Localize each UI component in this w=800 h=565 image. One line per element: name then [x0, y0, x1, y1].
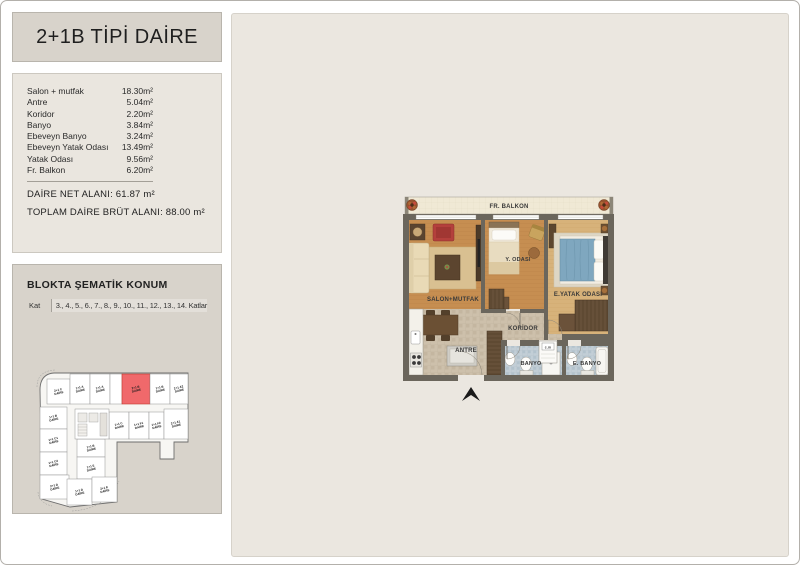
area-row-label: Koridor — [27, 109, 54, 120]
area-row: Fr. Balkon6.20m² — [27, 165, 153, 176]
sink — [505, 353, 515, 366]
room-label-balcony: FR. BALKON — [490, 204, 529, 210]
table-plant-flower — [446, 266, 448, 268]
toilet-tank — [581, 371, 594, 376]
service-core — [75, 409, 109, 439]
area-table-box: Salon + mutfak18.30m²Antre5.04m²Koridor2… — [12, 73, 222, 253]
wardrobe — [575, 300, 608, 331]
block-schematic: 2+1 CDAİRE1+1 ADAİRE1+1 ADAİRE2+1 BDAİRE… — [35, 342, 205, 514]
room-label-cm: c.m — [545, 346, 551, 350]
area-row: Banyo3.84m² — [27, 120, 153, 131]
area-table: Salon + mutfak18.30m²Antre5.04m²Koridor2… — [27, 86, 153, 176]
burner — [412, 355, 416, 359]
hall-closet — [487, 331, 502, 375]
bed-headboard — [489, 222, 519, 228]
area-row: Salon + mutfak18.30m² — [27, 86, 153, 97]
room-label-master-bathroom: E. BANYO — [573, 361, 602, 367]
windows — [416, 215, 603, 219]
area-row: Ebeveyn Banyo3.24m² — [27, 131, 153, 142]
cm-closet — [539, 341, 557, 363]
area-row-value: 9.56m² — [127, 154, 153, 165]
area-row-value: 18.30m² — [122, 86, 153, 97]
area-row-label: Antre — [27, 97, 47, 108]
room-label-master-bedroom: E.YATAK ODASI — [554, 292, 602, 298]
area-row-label: Fr. Balkon — [27, 165, 65, 176]
wardrobe-side — [559, 314, 575, 331]
sink — [411, 331, 420, 344]
armchair-cushion — [436, 227, 451, 238]
area-row-value: 6.20m² — [127, 165, 153, 176]
burner — [412, 361, 416, 365]
area-row: Antre5.04m² — [27, 97, 153, 108]
room-label-entry: ANTRE — [455, 348, 477, 354]
block-location-box: BLOKTA ŞEMATİK KONUM Kat 3., 4., 5., 6.,… — [12, 264, 222, 514]
area-row-label: Yatak Odası — [27, 154, 73, 165]
room-label-salon: SALON+MUTFAK — [427, 297, 479, 303]
gross-area-value: 88.00 m² — [166, 207, 205, 218]
page-title: 2+1B TİPİ DAİRE — [36, 26, 198, 49]
bed-headboard — [603, 236, 608, 284]
lamp — [602, 288, 608, 294]
room-label-bedroom: Y. ODASI — [505, 257, 530, 263]
dining-table — [420, 315, 458, 335]
faucet — [415, 333, 417, 335]
pillow — [492, 230, 516, 240]
area-row-value: 2.20m² — [127, 109, 153, 120]
pillow — [594, 262, 604, 281]
lamp — [413, 228, 422, 237]
pillow — [594, 240, 604, 259]
blanket-band — [489, 262, 519, 274]
flower-pot — [407, 200, 418, 211]
area-row-label: Salon + mutfak — [27, 86, 84, 97]
door-threshold — [548, 334, 562, 340]
area-row-label: Banyo — [27, 120, 51, 131]
divider-line — [27, 181, 153, 182]
area-row-value: 3.84m² — [127, 120, 153, 131]
flower-pot — [599, 200, 610, 211]
burner — [417, 355, 421, 359]
brochure-page: 2+1B TİPİ DAİRE Salon + mutfak18.30m²Ant… — [0, 0, 800, 565]
blue-blanket — [560, 239, 595, 281]
lamp — [602, 226, 608, 232]
toilet-tank — [520, 371, 533, 376]
wardrobe — [489, 289, 504, 309]
gross-area-label: TOPLAM DAİRE BRÜT ALANI: — [27, 207, 163, 218]
dining-chair — [426, 335, 435, 341]
stove — [411, 353, 422, 367]
floor-row: Kat 3., 4., 5., 6., 7., 8., 9., 10., 11.… — [27, 298, 207, 312]
floorplan: FR. BALKON SALON+MUTFAK Y. ODASI E.YATAK… — [396, 191, 626, 411]
area-row-label: Ebeveyn Banyo — [27, 131, 87, 142]
wardrobe-step — [504, 297, 509, 309]
area-row: Ebeveyn Yatak Odası13.49m² — [27, 142, 153, 153]
entrance-arrow-icon — [462, 387, 480, 401]
net-area-label: DAİRE NET ALANI: — [27, 189, 113, 200]
gross-area-line: TOPLAM DAİRE BRÜT ALANI: 88.00 m² — [27, 207, 207, 218]
net-area-value: 61.87 m² — [116, 189, 155, 200]
apartment-type-title-box: 2+1B TİPİ DAİRE — [12, 12, 222, 62]
area-row-value: 13.49m² — [122, 142, 153, 153]
floor-label: Kat — [27, 301, 51, 310]
area-row-label: Ebeveyn Yatak Odası — [27, 142, 108, 153]
floor-list: 3., 4., 5., 6., 7., 8., 9., 10., 11., 12… — [51, 299, 207, 312]
dining-chair — [441, 335, 450, 341]
area-row-value: 3.24m² — [127, 131, 153, 142]
kitchen — [409, 309, 423, 375]
sofa-back — [409, 243, 414, 293]
area-row: Yatak Odası9.56m² — [27, 154, 153, 165]
unit-cell — [110, 374, 122, 404]
area-row-value: 5.04m² — [127, 97, 153, 108]
burner — [417, 361, 421, 365]
room-label-corridor: KORİDOR — [508, 325, 538, 332]
area-row: Koridor2.20m² — [27, 109, 153, 120]
room-label-bathroom: BANYO — [521, 361, 542, 367]
net-area-line: DAİRE NET ALANI: 61.87 m² — [27, 189, 207, 200]
tv-screen — [478, 239, 481, 267]
block-location-title: BLOKTA ŞEMATİK KONUM — [27, 279, 207, 291]
